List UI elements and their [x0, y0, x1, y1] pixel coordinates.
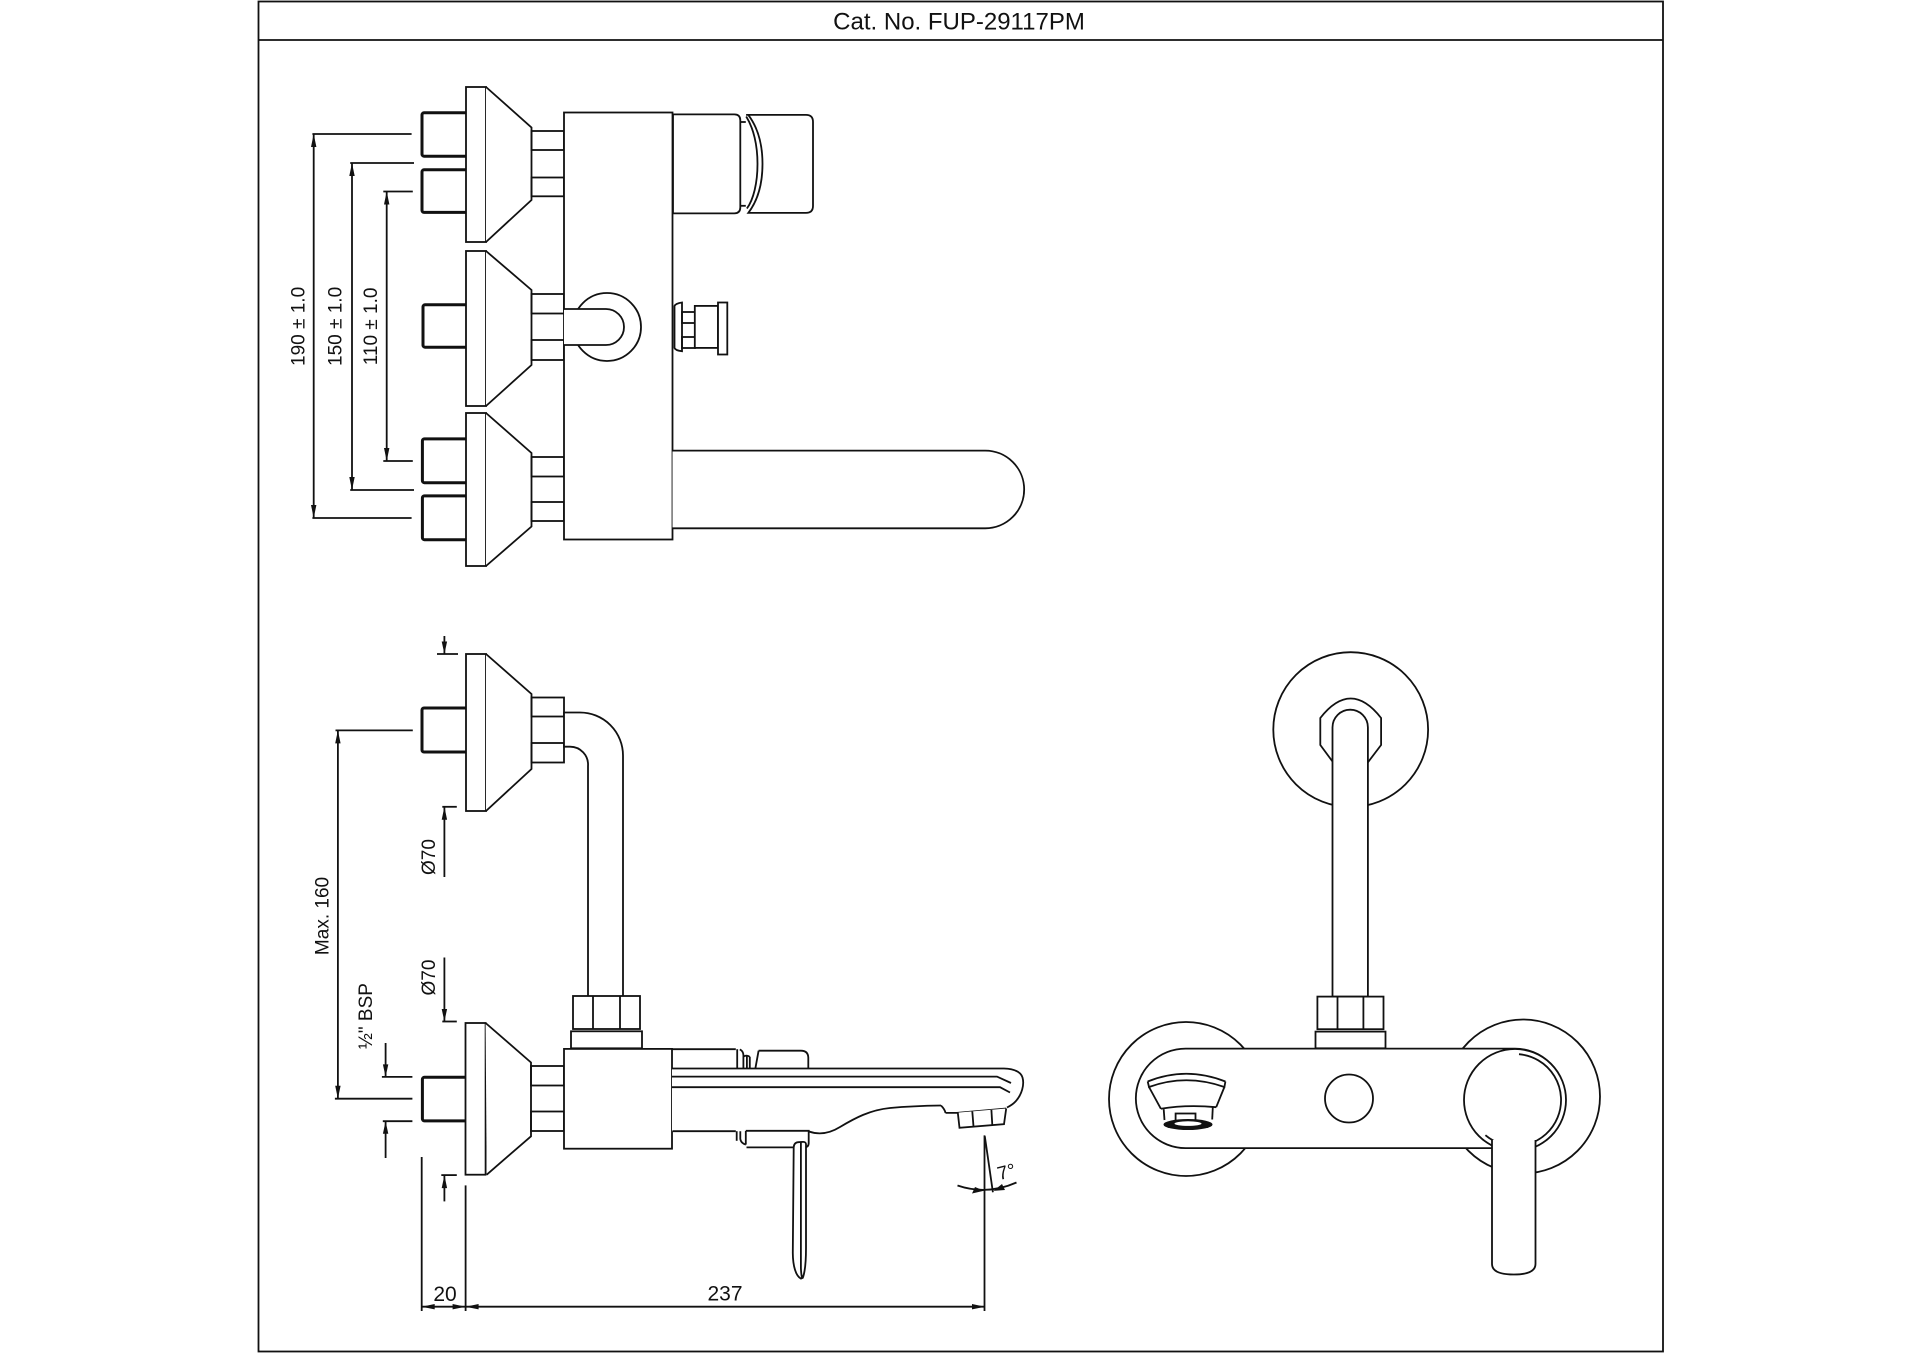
svg-text:190 ± 1.0: 190 ± 1.0	[289, 287, 310, 366]
svg-text:Ø70: Ø70	[419, 960, 440, 996]
svg-text:½" BSP: ½" BSP	[356, 983, 377, 1049]
svg-text:237: 237	[707, 1283, 742, 1306]
svg-text:Max. 160: Max. 160	[313, 877, 334, 955]
svg-text:20: 20	[433, 1283, 456, 1306]
svg-text:110 ± 1.0: 110 ± 1.0	[361, 288, 382, 366]
svg-text:Cat. No. FUP-29117PM: Cat. No. FUP-29117PM	[833, 9, 1085, 36]
svg-text:150 ± 1.0: 150 ± 1.0	[326, 287, 347, 366]
svg-text:Ø70: Ø70	[419, 839, 440, 875]
